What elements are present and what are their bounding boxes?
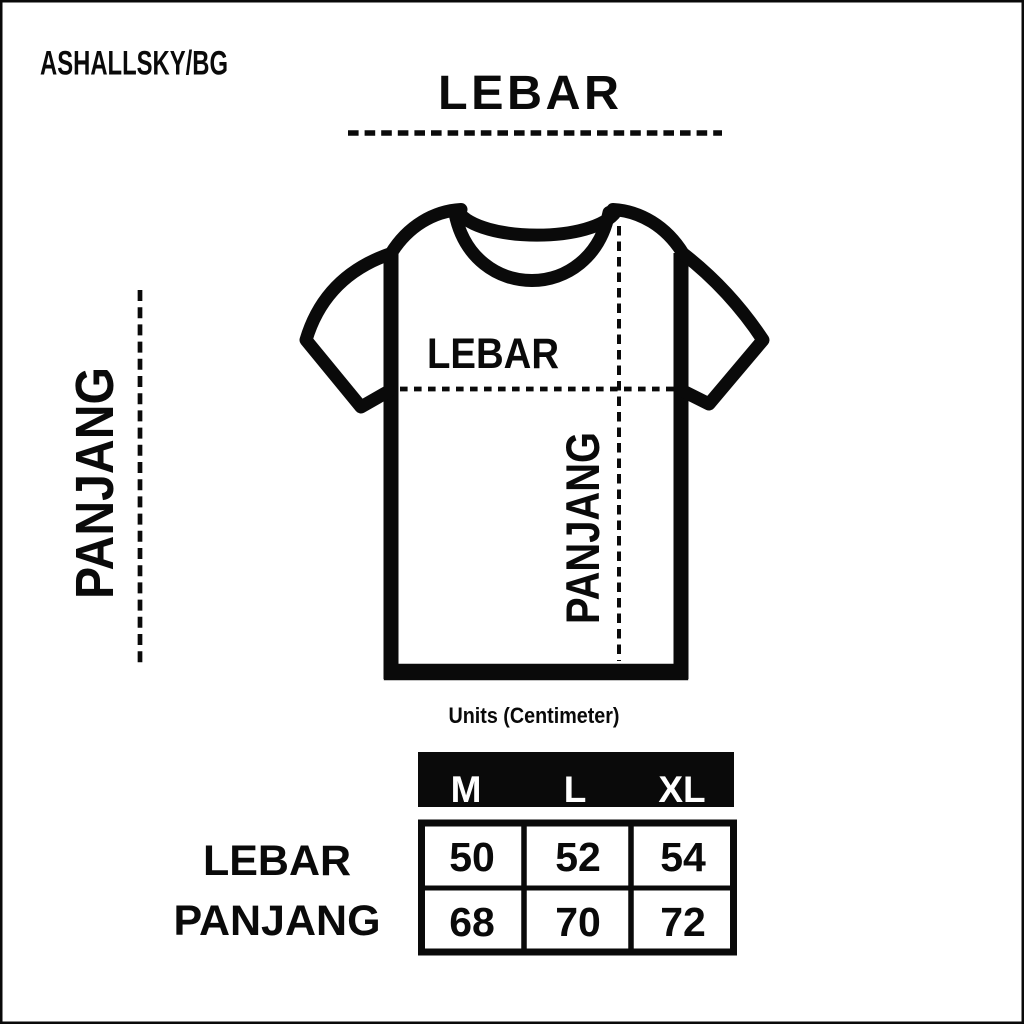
svg-text:68: 68 [449,899,495,945]
svg-text:M: M [451,769,482,810]
svg-text:LEBAR: LEBAR [438,66,619,120]
svg-text:L: L [564,769,587,810]
svg-text:LEBAR: LEBAR [203,837,351,885]
svg-text:PANJANG: PANJANG [65,367,125,599]
svg-text:PANJANG: PANJANG [556,432,609,624]
svg-text:70: 70 [555,899,601,945]
svg-text:PANJANG: PANJANG [173,897,380,945]
svg-text:72: 72 [660,899,706,945]
svg-text:LEBAR: LEBAR [427,331,559,378]
svg-text:50: 50 [449,834,495,880]
svg-text:XL: XL [658,769,705,810]
svg-text:54: 54 [660,834,706,880]
svg-text:52: 52 [555,834,601,880]
svg-text:ASHALLSKY/BG: ASHALLSKY/BG [40,45,228,83]
svg-text:Units (Centimeter): Units (Centimeter) [449,703,620,728]
